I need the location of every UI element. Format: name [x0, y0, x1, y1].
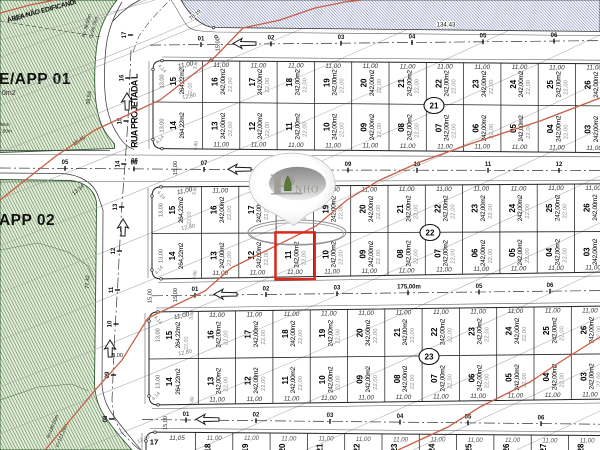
svg-text:242,00m2: 242,00m2: [219, 242, 226, 269]
svg-text:11,00: 11,00: [393, 436, 409, 443]
svg-text:11: 11: [109, 286, 115, 293]
svg-text:22,00: 22,00: [228, 77, 234, 92]
svg-text:13: 13: [210, 251, 219, 260]
svg-text:242,00m2: 242,00m2: [444, 70, 451, 97]
svg-text:26: 26: [579, 325, 588, 334]
svg-text:17: 17: [122, 31, 128, 38]
svg-text:242,00m2: 242,00m2: [290, 367, 297, 394]
svg-text:18: 18: [285, 77, 294, 86]
svg-text:22,00: 22,00: [451, 248, 457, 263]
svg-text:11,00: 11,00: [288, 142, 304, 149]
svg-text:242,00m2: 242,00m2: [219, 196, 226, 223]
svg-text:22,00: 22,00: [377, 78, 383, 93]
svg-text:11,00: 11,00: [400, 63, 416, 70]
svg-text:10: 10: [318, 375, 327, 384]
svg-text:242,00m2: 242,00m2: [517, 194, 524, 221]
svg-text:22,00: 22,00: [559, 326, 565, 341]
svg-text:11,00: 11,00: [244, 435, 260, 442]
svg-text:242,00m2: 242,00m2: [216, 321, 223, 348]
svg-text:11,00: 11,00: [545, 392, 561, 399]
svg-text:20: 20: [360, 78, 369, 87]
svg-text:13,00: 13,00: [160, 74, 166, 88]
svg-text:14: 14: [169, 121, 178, 130]
svg-text:242,00m2: 242,00m2: [402, 365, 409, 392]
svg-text:09: 09: [356, 374, 365, 383]
svg-text:242,00m2: 242,00m2: [332, 113, 339, 140]
svg-text:06: 06: [471, 248, 480, 257]
svg-text:17: 17: [248, 77, 257, 86]
svg-text:242,00m2: 242,00m2: [589, 316, 596, 343]
svg-text:14: 14: [165, 377, 174, 386]
svg-text:22,00: 22,00: [187, 211, 193, 225]
svg-text:134.43: 134.43: [437, 22, 456, 29]
svg-text:242,00m2: 242,00m2: [406, 114, 413, 141]
svg-text:11,00: 11,00: [473, 266, 489, 273]
svg-text:22,00: 22,00: [224, 330, 230, 345]
svg-text:264,22m2: 264,22m2: [175, 368, 182, 395]
svg-text:22: 22: [353, 443, 362, 450]
svg-text:242,00m2: 242,00m2: [406, 70, 413, 97]
svg-text:22,00: 22,00: [376, 204, 382, 219]
svg-text:07: 07: [433, 248, 442, 257]
svg-text:23: 23: [425, 352, 434, 361]
svg-text:16: 16: [211, 77, 220, 86]
svg-text:11,00: 11,00: [318, 436, 334, 443]
svg-text:242,00m2: 242,00m2: [253, 367, 260, 394]
svg-text:22,00: 22,00: [261, 329, 267, 344]
svg-text:15,00: 15,00: [173, 161, 179, 175]
svg-text:01: 01: [192, 287, 199, 293]
svg-text:22,00: 22,00: [564, 124, 570, 139]
svg-text:22,00: 22,00: [413, 249, 419, 264]
svg-text:11,00: 11,00: [433, 309, 449, 316]
svg-text:13: 13: [211, 121, 220, 130]
svg-text:11,00: 11,00: [324, 268, 340, 275]
svg-text:11,00: 11,00: [356, 436, 372, 443]
svg-text:06: 06: [538, 415, 545, 421]
svg-text:04: 04: [409, 34, 416, 40]
svg-text:03: 03: [584, 124, 593, 133]
svg-text:12: 12: [111, 247, 117, 254]
svg-text:10: 10: [108, 320, 114, 327]
svg-text:22,00: 22,00: [188, 83, 194, 97]
svg-text:22,00: 22,00: [452, 123, 458, 138]
svg-text:17: 17: [247, 205, 256, 214]
svg-text:19: 19: [318, 328, 327, 337]
svg-text:06: 06: [472, 123, 481, 132]
svg-text:22,00: 22,00: [227, 205, 233, 220]
svg-text:11,00: 11,00: [209, 312, 225, 319]
svg-text:28: 28: [577, 443, 586, 450]
svg-text:242,00m2: 242,00m2: [444, 114, 451, 141]
svg-text:07: 07: [434, 123, 443, 132]
svg-text:05: 05: [508, 248, 517, 257]
svg-text:16: 16: [206, 330, 215, 339]
svg-text:03: 03: [583, 247, 592, 256]
svg-text:11,00: 11,00: [582, 307, 598, 314]
svg-text:11,00: 11,00: [281, 435, 297, 442]
svg-text:242,00m2: 242,00m2: [439, 365, 446, 392]
svg-text:264,22m2: 264,22m2: [179, 112, 186, 139]
svg-text:11,00: 11,00: [548, 265, 564, 272]
svg-text:07: 07: [430, 374, 439, 383]
svg-text:22,00: 22,00: [410, 327, 416, 342]
svg-text:11: 11: [284, 250, 293, 259]
svg-text:11,00: 11,00: [399, 267, 415, 274]
svg-text:11,00: 11,00: [511, 266, 527, 273]
svg-text:22,00: 22,00: [526, 79, 532, 94]
svg-text:242,00m2: 242,00m2: [551, 317, 558, 344]
svg-text:26: 26: [584, 80, 593, 89]
svg-text:13: 13: [206, 376, 215, 385]
svg-text:22,00: 22,00: [184, 336, 190, 350]
svg-text:22,00: 22,00: [373, 374, 379, 389]
svg-text:05: 05: [480, 34, 487, 40]
svg-text:242,00m2: 242,00m2: [480, 195, 487, 222]
svg-text:13,00: 13,00: [156, 375, 162, 389]
svg-text:11,00: 11,00: [508, 308, 524, 315]
svg-text:24: 24: [505, 326, 514, 335]
svg-text:242,00m2: 242,00m2: [477, 318, 484, 345]
svg-text:242,00m2: 242,00m2: [443, 195, 450, 222]
svg-text:11: 11: [485, 162, 492, 168]
svg-text:22,00: 22,00: [340, 78, 346, 93]
svg-text:11,00: 11,00: [474, 144, 490, 151]
svg-text:11,00: 11,00: [436, 186, 452, 193]
svg-text:22,00: 22,00: [563, 203, 569, 218]
svg-text:11,00: 11,00: [396, 310, 412, 317]
svg-text:242,00m2: 242,00m2: [592, 194, 599, 221]
svg-text:242,00m2: 242,00m2: [481, 70, 488, 97]
svg-text:242,00m2: 242,00m2: [439, 318, 446, 345]
svg-text:03: 03: [327, 413, 334, 419]
svg-text:20: 20: [359, 204, 368, 213]
svg-text:22,00: 22,00: [227, 251, 233, 266]
svg-text:22,00: 22,00: [410, 374, 416, 389]
svg-text:21: 21: [430, 101, 439, 110]
svg-text:23: 23: [472, 79, 481, 88]
svg-text:15,00: 15,00: [163, 416, 169, 430]
svg-text:21: 21: [393, 327, 402, 336]
svg-text:11,00: 11,00: [325, 142, 341, 149]
svg-text:06: 06: [547, 283, 554, 289]
svg-text:11,00: 11,00: [585, 185, 600, 192]
svg-text:11,00: 11,00: [212, 188, 228, 195]
svg-text:15,00: 15,00: [216, 37, 222, 51]
svg-text:242,00m2: 242,00m2: [368, 195, 375, 222]
svg-text:11,00: 11,00: [549, 144, 565, 151]
svg-text:22,00: 22,00: [339, 249, 345, 264]
svg-text:04: 04: [397, 414, 404, 420]
svg-text:242,00m2: 242,00m2: [481, 114, 488, 141]
svg-text:16: 16: [119, 74, 125, 81]
svg-text:11,00: 11,00: [321, 395, 337, 402]
svg-text:11,00: 11,00: [433, 393, 449, 400]
svg-text:264,22m2: 264,22m2: [178, 196, 185, 223]
svg-text:08: 08: [397, 123, 406, 132]
svg-text:11,00: 11,00: [473, 186, 489, 193]
svg-text:11,00: 11,00: [437, 143, 453, 150]
svg-text:242,00m2: 242,00m2: [556, 115, 563, 142]
svg-text:13,00: 13,00: [159, 249, 165, 263]
svg-text:242,00m2: 242,00m2: [589, 363, 596, 390]
svg-text:11,00: 11,00: [511, 185, 527, 192]
svg-text:09: 09: [345, 162, 352, 168]
svg-text:11,00: 11,00: [470, 309, 486, 316]
svg-text:22,00: 22,00: [340, 122, 346, 137]
svg-text:R=9,96m: R=9,96m: [0, 122, 10, 128]
svg-text:11,05: 11,05: [169, 435, 185, 442]
svg-text:22,00: 22,00: [261, 376, 267, 391]
svg-text:22,00: 22,00: [447, 327, 453, 342]
svg-text:264,22m2: 264,22m2: [175, 321, 182, 348]
svg-text:03: 03: [338, 35, 345, 41]
svg-text:242,00m2: 242,00m2: [592, 238, 599, 265]
svg-text:242,00m2: 242,00m2: [402, 319, 409, 346]
svg-text:07: 07: [201, 161, 208, 167]
svg-text:242,00m2: 242,00m2: [517, 239, 524, 266]
svg-text:09: 09: [359, 249, 368, 258]
svg-text:06: 06: [131, 159, 138, 165]
svg-text:23: 23: [390, 443, 399, 450]
svg-text:242,00m2: 242,00m2: [443, 240, 450, 267]
svg-text:22,00: 22,00: [488, 203, 494, 218]
svg-text:11,00: 11,00: [396, 394, 412, 401]
svg-text:11,00: 11,00: [212, 270, 228, 277]
svg-text:11,00: 11,00: [288, 63, 304, 70]
svg-text:11,00: 11,00: [505, 437, 521, 444]
svg-text:15,00: 15,00: [148, 289, 154, 303]
svg-text:26: 26: [583, 203, 592, 212]
svg-text:22,00: 22,00: [525, 248, 531, 263]
svg-text:11,00: 11,00: [213, 62, 229, 69]
svg-text:22,00: 22,00: [298, 329, 304, 344]
svg-text:242,00m2: 242,00m2: [405, 240, 412, 267]
svg-text:22,00: 22,00: [447, 373, 453, 388]
svg-text:16: 16: [210, 205, 219, 214]
svg-text:08: 08: [396, 249, 405, 258]
svg-text:17: 17: [150, 438, 158, 447]
svg-text:APP 02: APP 02: [0, 212, 55, 229]
svg-text:11,00: 11,00: [399, 186, 415, 193]
svg-text:21: 21: [397, 78, 406, 87]
svg-text:24: 24: [509, 79, 518, 88]
svg-text:242,00m2: 242,00m2: [518, 70, 525, 97]
svg-text:11,00: 11,00: [250, 270, 266, 277]
svg-text:06: 06: [551, 33, 558, 39]
svg-text:242,00m2: 242,00m2: [328, 320, 335, 347]
svg-text:242,00m2: 242,00m2: [593, 115, 600, 142]
svg-text:22,00: 22,00: [228, 121, 234, 136]
svg-text:11,00: 11,00: [358, 394, 374, 401]
svg-text:11,00: 11,00: [246, 312, 262, 319]
svg-text:11,00: 11,00: [470, 393, 486, 400]
svg-text:23: 23: [467, 327, 476, 336]
svg-text:12: 12: [244, 376, 253, 385]
svg-text:21: 21: [396, 204, 405, 213]
svg-text:24: 24: [427, 443, 436, 450]
svg-text:18: 18: [204, 443, 213, 450]
svg-text:12: 12: [248, 121, 257, 130]
svg-text:20: 20: [278, 443, 287, 450]
svg-text:11,00: 11,00: [207, 435, 223, 442]
svg-text:242,00m2: 242,00m2: [216, 367, 223, 394]
svg-text:13: 13: [113, 203, 119, 210]
svg-text:11,00: 11,00: [209, 396, 225, 403]
svg-text:242,00m2: 242,00m2: [555, 194, 562, 221]
svg-text:22: 22: [433, 204, 442, 213]
svg-text:242,00m2: 242,00m2: [331, 241, 338, 268]
svg-text:242,00m2: 242,00m2: [290, 320, 297, 347]
svg-text:242,00m2: 242,00m2: [365, 319, 372, 346]
svg-text:22,00: 22,00: [452, 79, 458, 94]
svg-text:264,22m2: 264,22m2: [178, 242, 185, 269]
svg-text:15,00: 15,00: [173, 288, 179, 302]
svg-text:22,00: 22,00: [489, 79, 495, 94]
svg-text:242,00m2: 242,00m2: [514, 317, 521, 344]
svg-text:11,00: 11,00: [358, 310, 374, 317]
svg-text:242,00m2: 242,00m2: [220, 68, 227, 95]
svg-text:22,00: 22,00: [224, 376, 230, 391]
svg-text:20: 20: [356, 328, 365, 337]
svg-text:22: 22: [430, 327, 439, 336]
svg-text:01: 01: [198, 36, 205, 42]
svg-text:242,00m2: 242,00m2: [480, 239, 487, 266]
svg-text:242,00m2: 242,00m2: [253, 320, 260, 347]
svg-text:21: 21: [315, 443, 324, 450]
svg-text:242,00m2: 242,00m2: [556, 71, 563, 98]
svg-text:13,00: 13,00: [156, 328, 162, 342]
svg-text:13,00: 13,00: [159, 203, 165, 217]
svg-text:11,00: 11,00: [251, 142, 267, 149]
svg-text:22,00: 22,00: [485, 326, 491, 341]
svg-text:22,00: 22,00: [522, 326, 528, 341]
svg-text:10: 10: [322, 122, 331, 131]
svg-text:22,00: 22,00: [373, 328, 379, 343]
svg-text:242,00m2: 242,00m2: [365, 366, 372, 393]
svg-text:04: 04: [545, 247, 554, 256]
svg-text:22,00: 22,00: [563, 247, 569, 262]
svg-text:12: 12: [556, 162, 563, 168]
svg-text:11: 11: [285, 122, 294, 131]
svg-text:01: 01: [183, 412, 190, 418]
svg-text:22: 22: [434, 79, 443, 88]
svg-text:10: 10: [321, 250, 330, 259]
svg-text:242,00m2: 242,00m2: [369, 113, 376, 140]
svg-text:11,00: 11,00: [542, 437, 558, 444]
svg-text:11,00: 11,00: [582, 392, 598, 399]
svg-text:11,00: 11,00: [436, 267, 452, 274]
svg-text:22,00: 22,00: [525, 203, 531, 218]
svg-text:14: 14: [115, 160, 121, 167]
svg-text:77,42: 77,42: [85, 275, 91, 289]
svg-text:11,00: 11,00: [545, 308, 561, 315]
svg-text:03: 03: [579, 372, 588, 381]
svg-text:11,00: 11,00: [284, 311, 300, 318]
svg-text:02: 02: [253, 413, 260, 419]
svg-text:22,00: 22,00: [265, 121, 271, 136]
svg-text:11,00: 11,00: [549, 64, 565, 71]
svg-text:11,00: 11,00: [586, 145, 600, 152]
svg-text:22,00: 22,00: [413, 204, 419, 219]
svg-text:11,00: 11,00: [251, 62, 267, 69]
svg-text:11,00: 11,00: [474, 64, 490, 71]
svg-text:11,00: 11,00: [361, 268, 377, 275]
svg-text:11,00: 11,00: [362, 63, 378, 70]
svg-text:22,00: 22,00: [265, 77, 271, 92]
svg-text:11,00: 11,00: [246, 396, 262, 403]
svg-text:22,00: 22,00: [301, 250, 307, 265]
svg-text:11: 11: [281, 376, 290, 385]
svg-text:24: 24: [508, 203, 517, 212]
svg-text:22,00: 22,00: [414, 78, 420, 93]
svg-text:11,00: 11,00: [287, 269, 303, 276]
svg-text:15: 15: [168, 205, 177, 214]
svg-text:242,00m2: 242,00m2: [257, 68, 264, 95]
svg-text:19: 19: [322, 78, 331, 87]
svg-text:19: 19: [241, 443, 250, 450]
svg-text:242,00m2: 242,00m2: [294, 69, 301, 96]
svg-text:22,00: 22,00: [488, 248, 494, 263]
svg-text:22,00: 22,00: [336, 375, 342, 390]
svg-text:25: 25: [542, 326, 551, 335]
svg-text:175,00m: 175,00m: [397, 284, 421, 290]
svg-text:11,00: 11,00: [508, 392, 524, 399]
svg-text:22,00: 22,00: [414, 122, 420, 137]
svg-text:11,00: 11,00: [437, 64, 453, 71]
svg-text:14: 14: [168, 251, 177, 260]
svg-text:22,00: 22,00: [451, 204, 457, 219]
svg-text:11,00: 11,00: [400, 143, 416, 150]
svg-text:11,00: 11,00: [586, 65, 600, 72]
svg-text:11,00: 11,00: [284, 395, 300, 402]
svg-text:25: 25: [545, 203, 554, 212]
svg-text:11,00: 11,00: [585, 265, 600, 272]
svg-text:242,00m2: 242,00m2: [369, 69, 376, 96]
svg-text:11,00: 11,00: [468, 437, 484, 444]
svg-text:23: 23: [471, 203, 480, 212]
svg-text:15: 15: [165, 330, 174, 339]
svg-text:05: 05: [505, 373, 514, 382]
svg-text:03: 03: [334, 286, 341, 292]
svg-text:05: 05: [476, 284, 483, 290]
svg-text:09: 09: [360, 122, 369, 131]
svg-text:11,00: 11,00: [512, 64, 528, 71]
svg-text:08: 08: [103, 415, 109, 422]
svg-text:22,00: 22,00: [559, 372, 565, 387]
svg-text:242,00m2: 242,00m2: [555, 239, 562, 266]
svg-text:NHO: NHO: [295, 185, 319, 196]
svg-text:04: 04: [546, 124, 555, 133]
svg-text:C=11,50m: C=11,50m: [0, 129, 12, 135]
svg-text:02: 02: [268, 36, 275, 42]
svg-text:06: 06: [467, 373, 476, 382]
svg-text:22,00: 22,00: [302, 121, 308, 136]
svg-text:05: 05: [62, 160, 69, 166]
svg-text:18: 18: [281, 329, 290, 338]
svg-text:242,00m2: 242,00m2: [477, 364, 484, 391]
svg-text:242,00m2: 242,00m2: [328, 366, 335, 393]
svg-text:11,00: 11,00: [321, 311, 337, 318]
svg-text:22,00: 22,00: [298, 375, 304, 390]
svg-text:11,00: 11,00: [430, 437, 446, 444]
svg-text:11,00: 11,00: [548, 185, 564, 192]
svg-text:22,00: 22,00: [264, 250, 270, 265]
svg-text:P: P: [270, 167, 296, 202]
svg-text:242,00m2: 242,00m2: [593, 71, 600, 98]
svg-text:11,00: 11,00: [213, 141, 229, 148]
svg-text:26: 26: [502, 443, 511, 450]
